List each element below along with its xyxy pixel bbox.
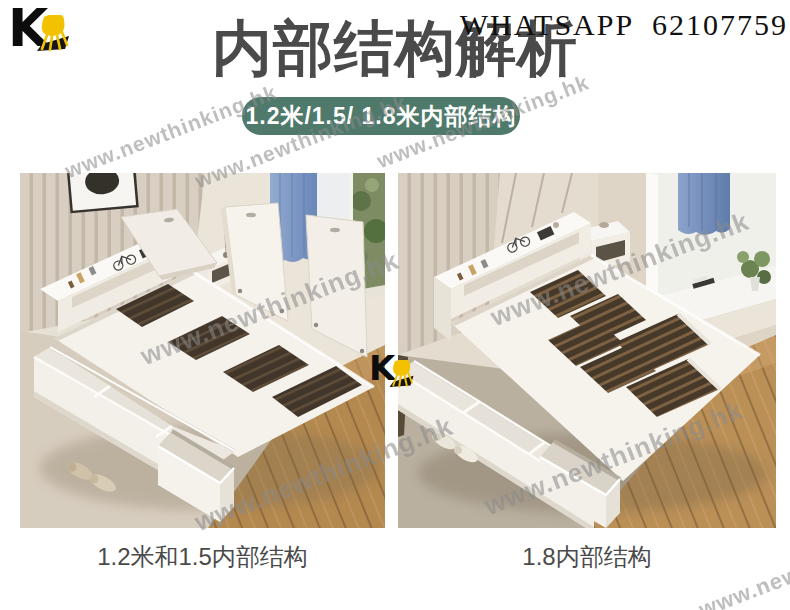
brand-logo: K [8, 2, 72, 60]
photo-bed-18 [398, 173, 776, 528]
caption-left: 1.2米和1.5内部结构 [20, 541, 385, 573]
brand-logo-small: K [369, 351, 423, 399]
chair-icon [35, 15, 71, 55]
caption-right: 1.8内部结构 [398, 541, 776, 573]
size-badge: 1.2米/1.5/ 1.8米内部结构 [242, 97, 520, 135]
chair-icon [388, 360, 415, 390]
whatsapp-contact: WHATSAPP 62107759 [460, 8, 788, 42]
curtain [678, 173, 730, 235]
bed-scene-left-illustration [20, 173, 385, 528]
picture-frame [67, 173, 137, 212]
bed-scene-right-illustration [398, 173, 776, 528]
watermark-text: www.newthinking.hk [62, 80, 281, 183]
promo-image: K WHATSAPP 62107759 内部结构解析 1.2米/1.5/ 1.8… [0, 0, 790, 610]
photo-bed-12-15 [20, 173, 385, 528]
